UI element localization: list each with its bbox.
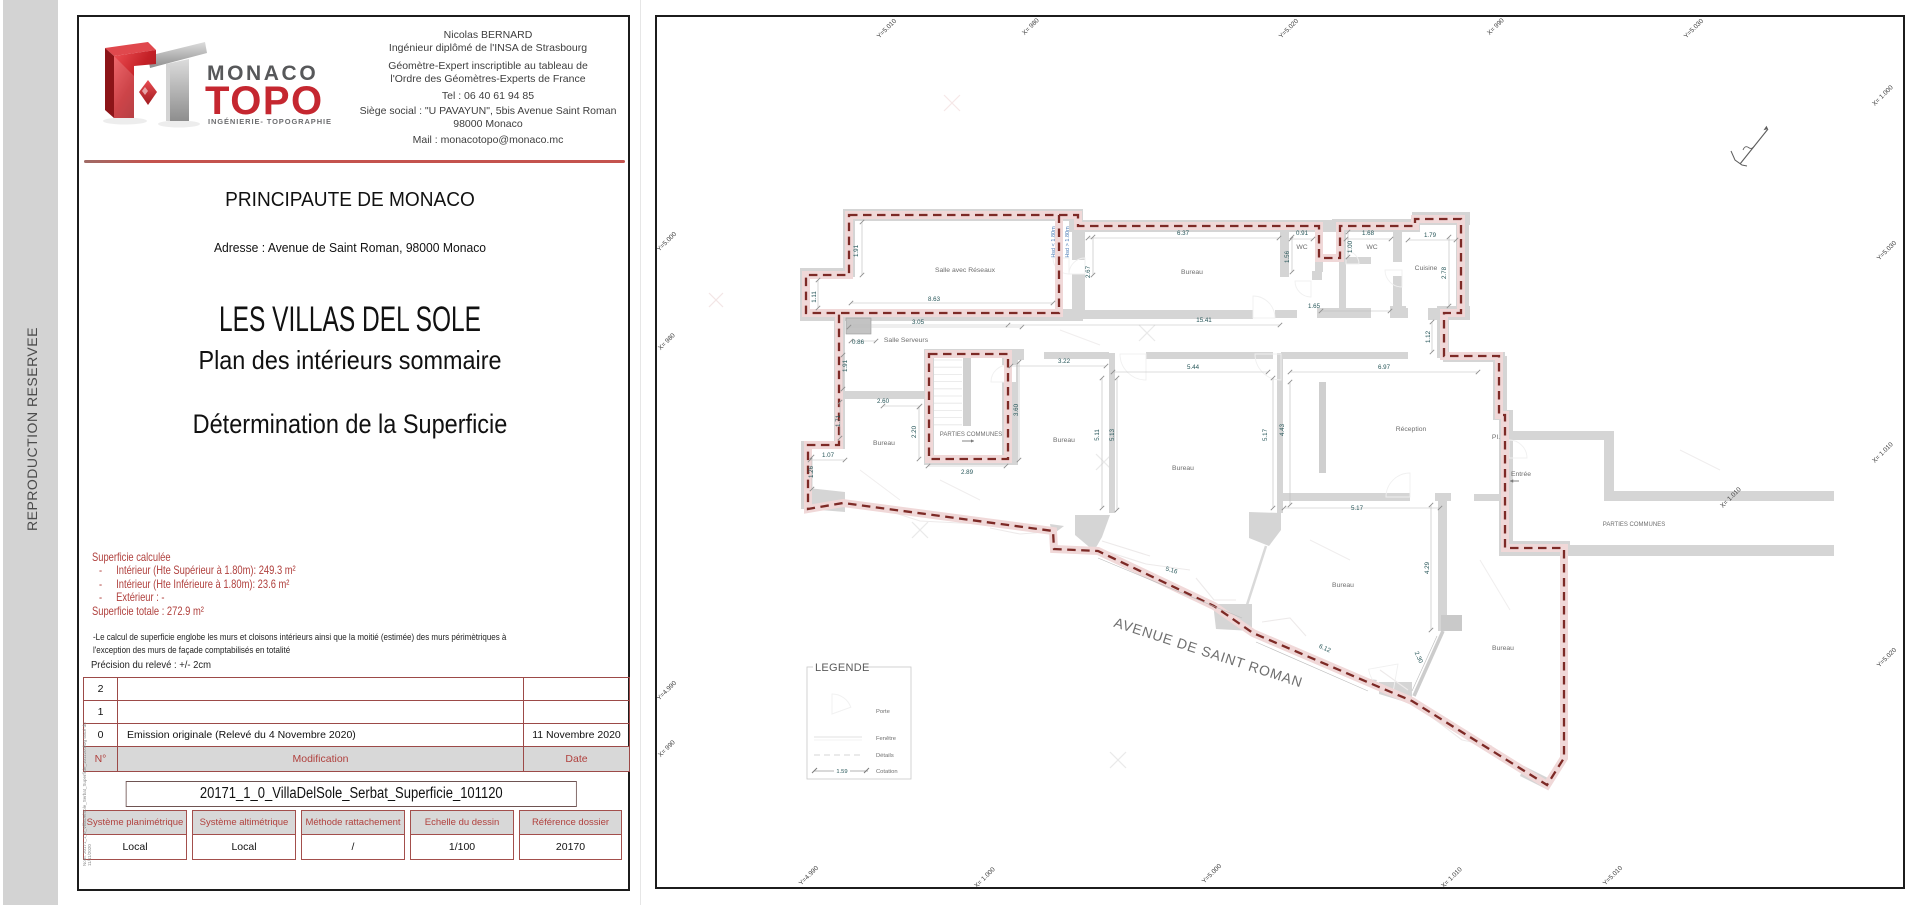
svg-text:WC: WC <box>1366 244 1377 251</box>
svg-text:Bureau: Bureau <box>1172 465 1194 472</box>
svg-text:4.43: 4.43 <box>1279 423 1286 436</box>
svg-text:6.12: 6.12 <box>1318 643 1332 655</box>
svg-text:Cotation: Cotation <box>876 769 898 775</box>
svg-text:1.12: 1.12 <box>1425 330 1432 343</box>
svg-text:1.68: 1.68 <box>1362 230 1375 237</box>
svg-text:1.00: 1.00 <box>1347 240 1354 253</box>
svg-text:PI.: PI. <box>1492 434 1500 441</box>
svg-text:0.86: 0.86 <box>852 339 865 346</box>
svg-text:X= 980: X= 980 <box>1021 17 1041 37</box>
svg-text:X= 1.010: X= 1.010 <box>1871 441 1895 465</box>
svg-text:2.89: 2.89 <box>961 469 974 476</box>
svg-text:Salle avec Réseaux: Salle avec Réseaux <box>935 267 996 274</box>
svg-text:AVENUE DE SAINT ROMAN: AVENUE DE SAINT ROMAN <box>1112 614 1305 690</box>
svg-text:PARTIES COMMUNES: PARTIES COMMUNES <box>1603 522 1665 528</box>
svg-text:5.44: 5.44 <box>1187 364 1200 371</box>
svg-text:1.65: 1.65 <box>1308 303 1321 310</box>
svg-text:Y=5.010: Y=5.010 <box>876 18 898 40</box>
svg-text:2.78: 2.78 <box>1441 266 1448 279</box>
svg-text:1.07: 1.07 <box>822 452 835 459</box>
svg-text:0.91: 0.91 <box>1296 230 1309 237</box>
svg-text:1.59: 1.59 <box>836 769 847 775</box>
svg-text:3.05: 3.05 <box>912 319 925 326</box>
svg-text:Salle Serveurs: Salle Serveurs <box>884 337 929 344</box>
svg-text:Y=5.030: Y=5.030 <box>1876 240 1898 262</box>
svg-text:X= 980: X= 980 <box>657 332 677 352</box>
svg-text:5.17: 5.17 <box>1351 505 1364 512</box>
svg-text:Hsd > 1.80m: Hsd > 1.80m <box>1065 226 1071 258</box>
svg-text:Y=5.020: Y=5.020 <box>1278 18 1300 40</box>
svg-text:6.37: 6.37 <box>1177 230 1190 237</box>
svg-text:2.30: 2.30 <box>1413 650 1425 664</box>
svg-text:5.13: 5.13 <box>1109 428 1116 441</box>
svg-text:Y=5.030: Y=5.030 <box>1683 18 1705 40</box>
svg-text:Entrée: Entrée <box>1511 471 1531 478</box>
svg-text:Y=4.990: Y=4.990 <box>798 865 820 887</box>
svg-text:8.63: 8.63 <box>928 296 941 303</box>
svg-text:LEGENDE: LEGENDE <box>815 662 870 674</box>
svg-text:Réception: Réception <box>1396 426 1427 433</box>
svg-text:Bureau: Bureau <box>1492 645 1514 652</box>
svg-text:Bureau: Bureau <box>1053 437 1075 444</box>
svg-text:X= 990: X= 990 <box>1486 17 1506 37</box>
svg-text:Y=5.010: Y=5.010 <box>1602 865 1624 887</box>
svg-text:X= 1.000: X= 1.000 <box>1871 84 1895 108</box>
svg-text:1.79: 1.79 <box>1424 232 1437 239</box>
svg-text:5.11: 5.11 <box>1094 429 1101 441</box>
svg-text:2.20: 2.20 <box>911 425 918 438</box>
svg-text:Détails: Détails <box>876 753 894 759</box>
svg-text:Bureau: Bureau <box>873 440 895 447</box>
svg-text:2.67: 2.67 <box>1085 265 1092 278</box>
svg-text:1.91: 1.91 <box>842 359 849 372</box>
svg-text:6.97: 6.97 <box>1378 364 1391 371</box>
svg-text:1.71: 1.71 <box>835 414 842 427</box>
svg-text:WC: WC <box>1296 244 1307 251</box>
svg-text:1.91: 1.91 <box>853 244 860 257</box>
svg-text:3.22: 3.22 <box>1058 358 1071 365</box>
svg-text:15.41: 15.41 <box>1196 317 1212 324</box>
svg-text:X= 1.000: X= 1.000 <box>973 866 997 887</box>
svg-text:2.60: 2.60 <box>877 398 890 405</box>
svg-text:Fenêtre: Fenêtre <box>876 736 896 742</box>
svg-text:Y=4.990: Y=4.990 <box>657 680 678 702</box>
svg-text:X= 1.010: X= 1.010 <box>1440 866 1464 887</box>
svg-text:4.29: 4.29 <box>1424 561 1431 574</box>
svg-text:Cuisine: Cuisine <box>1415 265 1438 272</box>
svg-text:Bureau: Bureau <box>1181 269 1203 276</box>
svg-text:Y=5.000: Y=5.000 <box>1201 863 1223 885</box>
svg-text:3.60: 3.60 <box>1013 403 1020 416</box>
svg-text:Bureau: Bureau <box>1332 582 1354 589</box>
svg-text:5.17: 5.17 <box>1262 428 1269 441</box>
svg-text:Porte: Porte <box>876 709 890 715</box>
svg-text:5.16: 5.16 <box>1165 566 1179 576</box>
svg-text:1.56: 1.56 <box>1284 250 1291 263</box>
svg-text:Hsd < 1.80m: Hsd < 1.80m <box>1051 226 1057 258</box>
svg-text:Y=5.020: Y=5.020 <box>1876 647 1898 669</box>
svg-text:1.26: 1.26 <box>808 465 815 478</box>
svg-text:X= 990: X= 990 <box>657 739 677 759</box>
svg-text:Y=5.000: Y=5.000 <box>657 231 678 253</box>
svg-text:1.11: 1.11 <box>811 291 818 303</box>
svg-text:PARTIES COMMUNES: PARTIES COMMUNES <box>940 432 1002 438</box>
